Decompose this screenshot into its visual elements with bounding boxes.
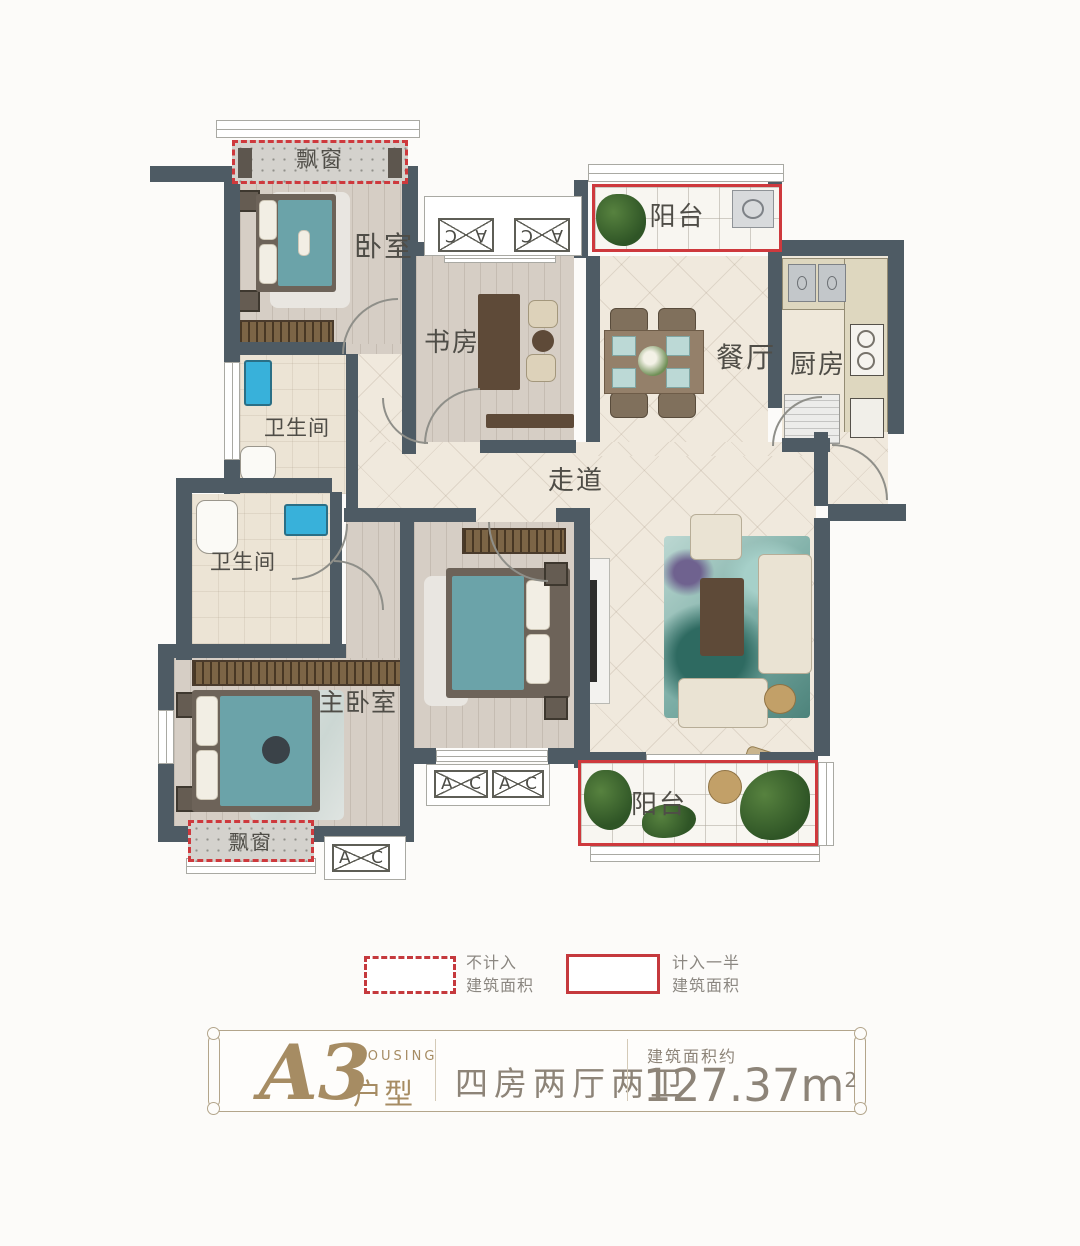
wall: [574, 520, 590, 762]
window: [158, 710, 174, 764]
wall: [158, 658, 174, 710]
banner-scroll-cap: [207, 1027, 220, 1040]
legend-excluded-text: 不计入 建筑面积: [466, 951, 576, 997]
banner-scroll-rod-left: [208, 1035, 220, 1107]
room-label-bay-bottom: 飘窗: [212, 830, 290, 854]
wall: [782, 240, 904, 256]
area-number: 127.37: [643, 1059, 800, 1112]
dining-chair: [658, 392, 696, 418]
window: [590, 846, 820, 862]
study-chair: [528, 300, 558, 328]
room-label-balcony-top: 阳台: [630, 202, 725, 233]
wall: [344, 508, 476, 522]
toilet: [196, 500, 238, 554]
place-setting: [612, 336, 636, 356]
table-centerpiece: [638, 346, 668, 376]
wall: [828, 504, 906, 521]
window: [216, 120, 420, 138]
room-label-study: 书房: [414, 328, 490, 359]
room-label-balcony-bottom: 阳台: [613, 790, 705, 821]
wall: [412, 748, 436, 764]
dining-chair: [610, 392, 648, 418]
legend-half-line2: 建筑面积: [672, 974, 782, 997]
wall: [158, 644, 346, 658]
pillow: [259, 244, 277, 284]
legend-dashed-box: [364, 956, 456, 994]
study-chair: [526, 354, 556, 382]
unit-type-suffix: 户型: [353, 1071, 415, 1113]
wall: [176, 478, 192, 660]
window: [588, 164, 784, 182]
wall: [158, 826, 190, 842]
bay-end-block: [238, 148, 252, 178]
floor-plan-page: AC AC AC AC AC 飘窗 卧室 书房 阳台 餐厅 厨房 卫生间 卫生间…: [0, 0, 1080, 1246]
wardrobe: [192, 660, 408, 686]
legend-excluded-line2: 建筑面积: [466, 974, 576, 997]
unit-housing-label: HOUSING: [355, 1049, 437, 1064]
pillow: [196, 750, 218, 800]
armchair: [690, 514, 742, 560]
wall: [346, 354, 358, 522]
banner-divider: [435, 1039, 436, 1101]
room-label-kitchen: 厨房: [772, 350, 864, 381]
wall: [240, 342, 346, 355]
legend-half-line1: 计入一半: [672, 951, 782, 974]
ac-letter-c: C: [521, 227, 533, 244]
window: [436, 750, 548, 762]
ac-letter-a: A: [441, 776, 453, 793]
pillow: [526, 634, 550, 684]
burner: [857, 330, 875, 348]
room-label-bath-lower: 卫生间: [200, 550, 286, 575]
ac-letter-c: C: [525, 776, 537, 793]
wall: [586, 256, 600, 442]
wall: [224, 166, 240, 362]
tv: [590, 580, 597, 682]
loveseat: [678, 678, 768, 728]
window: [818, 762, 834, 846]
ac-position-box: AC: [492, 770, 544, 798]
ac-position-box: AC: [438, 218, 494, 252]
place-setting: [612, 368, 636, 388]
nightstand: [238, 290, 260, 312]
banner-divider: [627, 1039, 628, 1101]
wall: [400, 520, 414, 842]
pillow: [196, 696, 218, 746]
sofa: [758, 554, 812, 674]
bed-runner: [298, 230, 310, 256]
ac-letter-c: C: [469, 776, 481, 793]
ac-position-box: AC: [514, 218, 570, 252]
ac-position-box: AC: [332, 844, 390, 872]
pillow: [259, 200, 277, 240]
legend-solid-box: [566, 954, 660, 994]
kitchen-sink: [818, 264, 846, 302]
kitchen-sink: [788, 264, 816, 302]
ac-letter-c: C: [445, 227, 457, 244]
area-value: 127.37m2: [643, 1063, 857, 1108]
ac-letter-a: A: [339, 850, 351, 867]
nightstand: [544, 696, 568, 720]
place-setting: [666, 336, 690, 356]
balcony-table: [708, 770, 742, 804]
ac-outdoor-unit: [732, 190, 774, 228]
legend-excluded-line1: 不计入: [466, 951, 576, 974]
coffee-table: [700, 578, 744, 656]
footer-banner: A3 HOUSING 户型 四房两厅两卫 建筑面积约 127.37m2: [214, 1030, 860, 1112]
wall: [480, 440, 576, 453]
area-exponent: 2: [844, 1068, 857, 1092]
room-label-bath-upper: 卫生间: [254, 416, 340, 441]
window: [224, 362, 240, 460]
study-side-table: [532, 330, 554, 352]
bed-throw: [262, 736, 290, 764]
banner-scroll-cap: [854, 1027, 867, 1040]
ac-position-box: AC: [434, 770, 488, 798]
place-setting: [666, 368, 690, 388]
banner-scroll-cap: [207, 1102, 220, 1115]
water-heater: [850, 398, 884, 438]
bay-end-block: [388, 148, 402, 178]
wall: [176, 478, 332, 493]
area-unit: m: [800, 1059, 844, 1112]
ac-letter-a: A: [475, 227, 487, 244]
pillow: [526, 580, 550, 630]
room-label-corridor: 走道: [530, 466, 622, 497]
room-label-bedroom: 卧室: [346, 230, 422, 264]
wall: [768, 256, 782, 408]
side-table: [764, 684, 796, 714]
bed-mattress: [452, 576, 524, 690]
ac-letter-a: A: [551, 227, 563, 244]
study-console: [486, 414, 574, 428]
ac-letter-c: C: [371, 850, 383, 867]
wall: [888, 248, 904, 434]
ac-letter-a: A: [499, 776, 511, 793]
room-label-bay-top: 飘窗: [252, 148, 388, 174]
wall: [814, 518, 830, 756]
legend-half-text: 计入一半 建筑面积: [672, 951, 782, 997]
room-label-master: 主卧室: [312, 688, 404, 718]
bathroom-sink: [244, 360, 272, 406]
